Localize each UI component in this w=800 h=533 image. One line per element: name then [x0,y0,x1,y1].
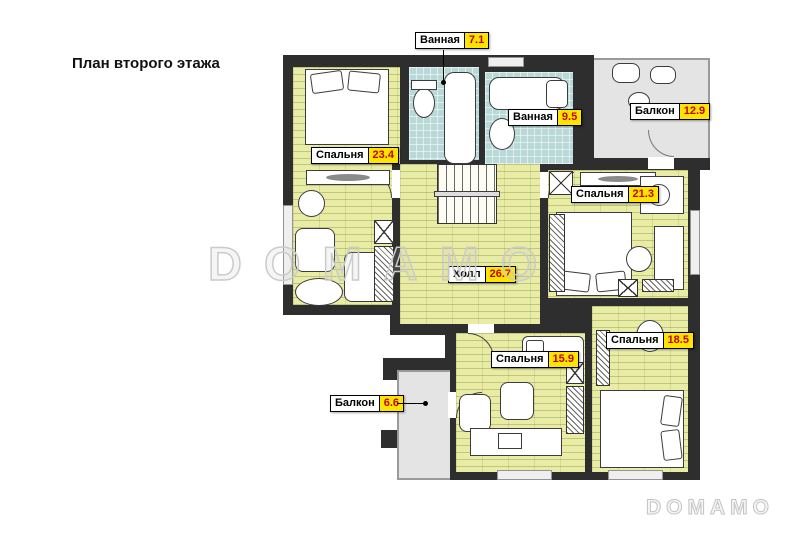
room-area: 9.5 [557,110,581,125]
bathtub [444,72,476,164]
label-leader-dot [441,80,446,85]
room-label-bedroom-3: Спальня15.9 [491,351,579,368]
room-label-bathroom-1: Ванная7.1 [415,32,489,49]
door-opening [540,172,548,198]
room-area: 12.9 [679,104,709,119]
room-name: Спальня [312,148,368,163]
toilet [546,80,568,108]
fan [298,190,325,217]
wardrobe [618,279,638,297]
room-area: 15.9 [548,352,578,367]
floor-plan-page: План второго этажа [0,0,800,533]
wardrobe [549,171,573,195]
page-title: План второго этажа [72,55,220,72]
dresser-handle [598,176,638,182]
room-name: Ванная [509,110,557,125]
room-name: Спальня [607,333,663,348]
room-label-balcony-1: Балкон12.9 [630,103,710,120]
room-label-bedroom-4: Спальня18.5 [606,332,694,349]
watermark-center: DOMAMO [208,236,559,291]
toilet [413,88,435,118]
pillow [660,429,683,461]
room-area: 23.4 [368,148,398,163]
pillow [347,70,381,93]
room-label-bedroom-1: Спальня23.4 [311,147,399,164]
door-opening [448,392,456,418]
wardrobe-shelves [642,279,674,292]
wall [395,358,455,370]
door-opening [468,324,494,333]
room-name: Балкон [331,396,379,411]
room-area: 7.1 [464,33,488,48]
door-opening [392,170,400,198]
wardrobe-shelves [566,386,584,434]
window [690,210,700,275]
window [608,470,663,480]
label-leader-dot [423,401,428,406]
room-label-bedroom-2: Спальня21.3 [571,186,659,203]
label-leader-line [397,403,425,404]
room-area: 18.5 [663,333,693,348]
watermark-corner: DOMAMO [646,496,774,520]
room-name: Спальня [492,352,548,367]
armchair [459,394,491,432]
door-opening [648,157,674,169]
room-label-bathroom-2: Ванная9.5 [508,109,582,126]
monitor [498,433,522,449]
balcony-chair [612,63,640,83]
room-name: Ванная [416,33,464,48]
toilet-tank [411,80,437,90]
room-area: 21.3 [628,187,658,202]
balcony-chair [650,66,676,84]
office-chair [626,246,652,272]
room-name: Балкон [631,104,679,119]
dresser-handle [326,174,370,181]
floor-balcony-2 [397,370,450,480]
window [488,57,524,67]
room-label-balcony-2: Балкон6.6 [330,395,404,412]
label-leader-line [443,50,444,81]
office-chair [500,382,534,420]
room-name: Спальня [572,187,628,202]
staircase-landing [434,191,500,197]
window [497,470,552,480]
